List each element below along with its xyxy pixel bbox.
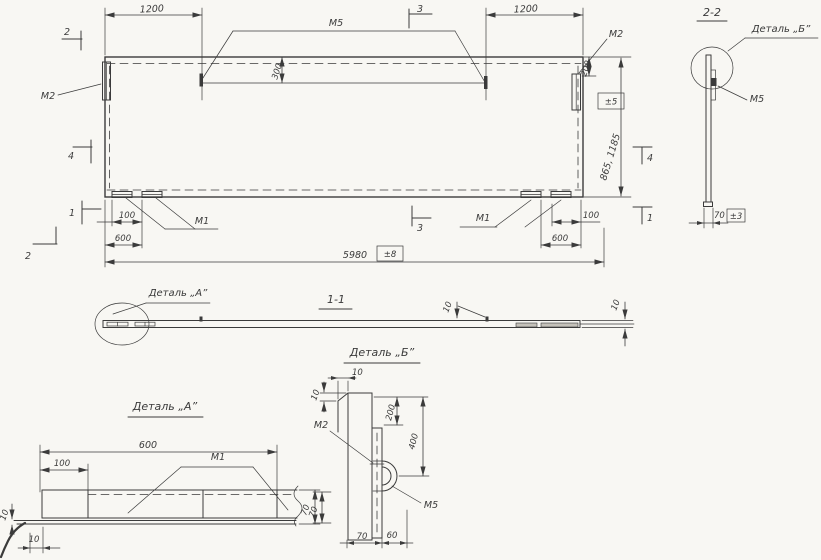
- main-elevation-view: М5 1200 1200 300 200 865, 1185 ±5: [25, 3, 653, 267]
- detail-b-view: Деталь „Б” М2 М5 10: [307, 346, 438, 548]
- dim-10-overhang: 10: [29, 535, 40, 545]
- detail-a-m1-callout: М1: [128, 452, 288, 513]
- weld-label-m1-detail: М1: [211, 452, 225, 463]
- dim-600-right: 600: [552, 234, 568, 244]
- dim-5980: 5980: [343, 250, 367, 261]
- dim-width-70: 70: [357, 532, 368, 542]
- drawing-canvas: М5 1200 1200 300 200 865, 1185 ±5: [0, 0, 821, 560]
- m5-loop-inner: [382, 467, 391, 485]
- m5-weld-marks: [200, 74, 488, 90]
- cut-marker-1-left: 1: [69, 208, 75, 219]
- detail-a-view: Деталь „А” М1 600 1: [0, 400, 320, 557]
- dim-loop-offset: 400: [407, 433, 421, 451]
- dim-height: 865, 1185: [598, 132, 623, 181]
- cut-marker-4-right: 4: [647, 153, 653, 164]
- detail-b-title: Деталь „Б”: [349, 346, 415, 359]
- dimensions-bottom: 100 600 100 600 5980 ±8: [97, 200, 604, 267]
- cut-marker-1-right: 1: [647, 213, 653, 224]
- dim-10-mid: 10: [442, 300, 485, 318]
- dim-plate-offset: 200: [384, 404, 398, 422]
- m2-weld-plate-right: [572, 74, 581, 110]
- section-2-2-view: 2-2 Деталь „Б” М5 70 ±3: [689, 6, 818, 228]
- m5-weld-section: [712, 78, 717, 86]
- weld-label-m2-right: М2: [609, 29, 623, 40]
- detail-b-callout: Деталь „Б”: [751, 24, 811, 35]
- cut-marker-2-top: 2: [64, 27, 70, 38]
- dim-70-section: 70 ±3: [689, 208, 745, 228]
- section-1-1-title: 1-1: [327, 293, 345, 306]
- dimensions-right: 865, 1185 ±5: [584, 58, 631, 197]
- dim-100-detail: 100: [54, 459, 70, 469]
- section-cut-markers: 2 3 4 1 2 3 4 1: [25, 4, 653, 262]
- m5-weld-callout: М5: [201, 18, 486, 84]
- dim-side-70: 70: [307, 505, 320, 519]
- detail-b-dims: 10 10 200 400 70 70 60: [307, 368, 429, 548]
- weld-label-m5: М5: [329, 18, 343, 29]
- m2-plate-detail: [372, 428, 382, 538]
- dim-200-right: 200: [579, 59, 594, 78]
- dim-10-thickness: 10: [0, 508, 12, 522]
- dim-10-end-label: 10: [610, 298, 623, 312]
- dim-10-end: 10: [582, 298, 633, 346]
- panel-outline: [105, 57, 583, 197]
- dim-1200-left: 1200: [140, 3, 165, 15]
- weld-label-m1-left: М1: [195, 216, 209, 227]
- dim-lip-height: 10: [309, 388, 322, 402]
- dim-loop-width-60: 60: [387, 531, 398, 541]
- dim-10-mid-label: 10: [442, 300, 455, 314]
- dim-1200-right: 1200: [514, 3, 539, 15]
- sheet-corner-curl: [1, 523, 25, 557]
- cut-marker-4-left: 4: [68, 151, 74, 162]
- dim-height-tolerance: ±5: [605, 98, 618, 108]
- weld-label-m1-right: М1: [476, 213, 490, 224]
- cut-marker-2-bottom: 2: [25, 251, 31, 262]
- dim-70-tolerance: ±3: [730, 212, 743, 222]
- loop-label-m5: М5: [424, 500, 438, 511]
- dim-lip-width: 10: [352, 368, 363, 378]
- panel-strip-section: [103, 317, 634, 328]
- dim-600-detail: 600: [139, 440, 157, 451]
- engineering-drawing-page: М5 1200 1200 300 200 865, 1185 ±5: [0, 0, 821, 560]
- dimensions-top: 1200 1200 300 200: [105, 3, 631, 100]
- cut-marker-3-top: 3: [417, 4, 423, 15]
- detail-a-callout: Деталь „А”: [148, 288, 208, 299]
- weld-label-m2-left: М2: [41, 91, 55, 102]
- dim-5980-tolerance: ±8: [384, 250, 397, 260]
- dim-70-label: 70: [714, 211, 725, 221]
- panel-edge-section: [704, 55, 717, 207]
- detail-a-dims: 600 100 70 10 10: [0, 440, 320, 553]
- dim-300: 300: [270, 62, 285, 81]
- detail-a-title: Деталь „А”: [132, 400, 198, 413]
- detail-a-bar: [1, 486, 302, 557]
- dim-100-right: 100: [583, 211, 599, 221]
- section-1-1-view: 1-1 Деталь „А” 10: [95, 288, 634, 346]
- section-2-2-title: 2-2: [703, 6, 721, 19]
- dim-600-left: 600: [115, 234, 131, 244]
- plate-label-m2: М2: [314, 420, 328, 431]
- m5-loop-outer: [382, 461, 397, 491]
- weld-labels: М2 М2 М1 М1: [41, 29, 623, 229]
- weld-label-m5-section: М5: [750, 94, 764, 105]
- dim-100-left: 100: [119, 211, 135, 221]
- cut-marker-3-bottom: 3: [417, 223, 423, 234]
